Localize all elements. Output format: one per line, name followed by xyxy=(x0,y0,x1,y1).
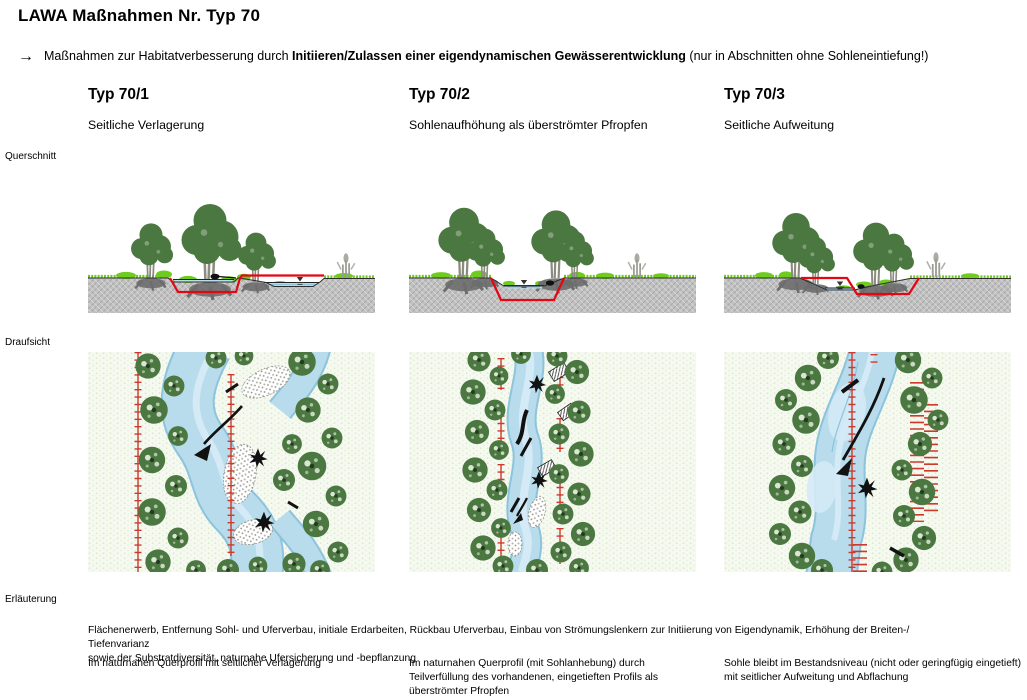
intro-prefix: Maßnahmen zur Habitatverbesserung durch xyxy=(44,49,292,63)
intro-line: →Maßnahmen zur Habitatverbesserung durch… xyxy=(18,48,928,66)
reed-icon xyxy=(628,253,646,277)
deadwood xyxy=(211,274,220,280)
deadwood xyxy=(546,280,554,285)
explanation-common-line1: Flächenerwerb, Entfernung Sohl- und Ufer… xyxy=(88,624,948,652)
page-title: LAWA Maßnahmen Nr. Typ 70 xyxy=(18,6,260,26)
river xyxy=(521,352,530,572)
row-label-querschnitt: Querschnitt xyxy=(5,151,56,162)
column-title: Sohlenaufhöhung als überströmter Pfropfe… xyxy=(409,118,719,132)
column-id: Typ 70/1 xyxy=(88,86,388,104)
top-view-typ-70-1 xyxy=(88,352,375,572)
column-title: Seitliche Aufweitung xyxy=(724,118,1024,132)
column-header-typ-70-2: Typ 70/2 Sohlenaufhöhung als überströmte… xyxy=(409,86,719,132)
note-typ-70-3: Sohle bleibt im Bestandsniveau (nicht od… xyxy=(724,657,1026,685)
column-header-typ-70-1: Typ 70/1 Seitliche Verlagerung xyxy=(88,86,388,132)
page-title-wrap: LAWA Maßnahmen Nr. Typ 70 xyxy=(18,6,260,26)
cross-section-typ-70-1 xyxy=(88,183,375,316)
top-view-typ-70-2 xyxy=(409,352,696,572)
intro-bold: Initiieren/Zulassen einer eigendynamisch… xyxy=(292,49,686,63)
top-view-typ-70-3 xyxy=(724,352,1011,572)
column-header-typ-70-3: Typ 70/3 Seitliche Aufweitung xyxy=(724,86,1024,132)
intro-suffix: (nur in Abschnitten ohne Sohleneintiefun… xyxy=(686,49,929,63)
column-id: Typ 70/2 xyxy=(409,86,719,104)
note-typ-70-1: Im naturnahen Querprofil mit seitlicher … xyxy=(88,657,388,671)
cross-section-typ-70-3 xyxy=(724,183,1011,316)
right-arrow-icon: → xyxy=(18,48,34,65)
row-label-erlaeuterung: Erläuterung xyxy=(5,594,57,605)
column-title: Seitliche Verlagerung xyxy=(88,118,388,132)
row-label-draufsicht: Draufsicht xyxy=(5,337,50,348)
column-id: Typ 70/3 xyxy=(724,86,1024,104)
cross-section-typ-70-2 xyxy=(409,183,696,316)
reed-icon xyxy=(927,252,945,277)
deadwood xyxy=(857,284,864,288)
note-typ-70-2: Im naturnahen Querprofil (mit Sohlanhebu… xyxy=(409,657,661,700)
